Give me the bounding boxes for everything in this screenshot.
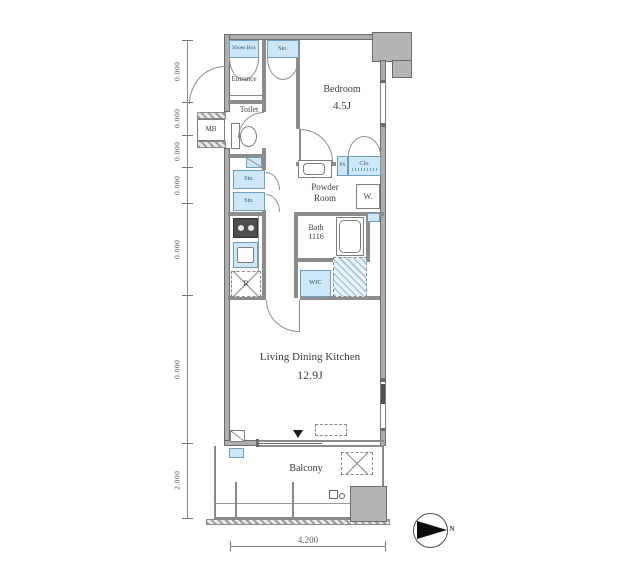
window-bedroom bbox=[380, 80, 386, 126]
balcony-small-box bbox=[229, 448, 244, 458]
balcony-rail-post bbox=[292, 482, 294, 518]
entrance-door-arc bbox=[189, 66, 225, 104]
room-label-mb: MB bbox=[197, 125, 225, 133]
ac-unit-space bbox=[315, 424, 347, 436]
stove-burner bbox=[248, 225, 254, 231]
balcony-edge-left bbox=[214, 446, 216, 519]
shoes-box: Shoes Box bbox=[229, 40, 259, 58]
kitchen-sink-basin bbox=[237, 247, 254, 263]
mb-hatch bbox=[197, 141, 226, 148]
storage-door-arc bbox=[266, 172, 280, 190]
room-label-powder-2: Room bbox=[300, 193, 350, 203]
compass-north-label: N bbox=[447, 525, 457, 533]
toilet-counter bbox=[246, 157, 262, 168]
window-balcony-top bbox=[256, 440, 384, 442]
dimension-label-bottom: 4.200 bbox=[278, 535, 338, 545]
refrigerator-label: R bbox=[231, 279, 261, 288]
dimension-label-left: 2.000 bbox=[170, 462, 184, 498]
structural-column-bottom-right bbox=[350, 486, 387, 522]
floor-plan-canvas: 0.000 0.000 0.000 0.000 0.000 0.000 2.00… bbox=[0, 0, 640, 569]
storage-1: Sto. bbox=[233, 170, 265, 189]
room-label-ldk-size: 12.9J bbox=[280, 368, 340, 383]
toilet-door-arc bbox=[238, 112, 264, 138]
wall-right bbox=[380, 60, 386, 82]
room-label-entrance: Entrance bbox=[222, 75, 266, 83]
wall-interior bbox=[262, 148, 266, 170]
dimension-label-left: 0.000 bbox=[170, 133, 184, 169]
dimension-tick bbox=[230, 541, 231, 551]
dimension-label-left: 0.000 bbox=[170, 53, 184, 89]
entry-direction-marker bbox=[293, 430, 303, 438]
stove bbox=[233, 218, 258, 238]
dimension-tick bbox=[385, 541, 386, 551]
stove-burner bbox=[238, 225, 244, 231]
balcony-faucet-icon bbox=[329, 490, 338, 499]
closet-box: Clo. bbox=[348, 156, 381, 176]
counter-box bbox=[367, 213, 380, 222]
closet-door-arc bbox=[364, 136, 381, 156]
dimension-tick bbox=[182, 443, 193, 444]
wall-right bbox=[380, 430, 386, 446]
room-label-bath-size: 1116 bbox=[298, 232, 334, 241]
washbasin-bowl bbox=[303, 163, 325, 175]
dimension-label-left: 0.000 bbox=[170, 167, 184, 203]
bedroom-door-arc bbox=[300, 129, 333, 162]
room-label-powder-1: Powder bbox=[300, 182, 350, 192]
dimension-label-left: 0.000 bbox=[170, 231, 184, 267]
balcony-rail-post bbox=[235, 482, 237, 518]
dimension-line-left bbox=[187, 40, 188, 518]
wic-shelf-hatch bbox=[333, 257, 367, 297]
dimension-label-left: 0.000 bbox=[170, 100, 184, 136]
dimension-line-bottom bbox=[230, 546, 386, 547]
window-balcony-bottom bbox=[256, 445, 384, 447]
room-label-balcony: Balcony bbox=[276, 463, 336, 474]
room-label-bath: Bath bbox=[298, 223, 334, 232]
wall-interior bbox=[228, 100, 264, 104]
storage-2: Sto. bbox=[233, 192, 265, 211]
wic-box: WIC bbox=[300, 270, 331, 297]
mb-hatch bbox=[197, 112, 226, 119]
window-frame bbox=[380, 378, 386, 382]
evacuation-hatch bbox=[341, 452, 373, 475]
dimension-tick bbox=[182, 40, 193, 41]
room-label-bedroom: Bedroom bbox=[312, 84, 372, 95]
ldk-door-leaf bbox=[299, 300, 301, 332]
entrance-step-line bbox=[228, 95, 262, 96]
bedroom-door-leaf bbox=[299, 129, 301, 162]
wall-interior bbox=[262, 210, 266, 298]
balcony-drain-icon bbox=[339, 493, 345, 499]
dimension-tick bbox=[182, 203, 193, 204]
ldk-door-arc bbox=[266, 300, 299, 332]
room-label-bedroom-size: 4.5J bbox=[322, 100, 362, 112]
room-label-ldk: Living Dining Kitchen bbox=[240, 351, 380, 363]
washer-label: W. bbox=[356, 192, 380, 201]
window-frame bbox=[256, 439, 259, 447]
closet-hanger-pipe bbox=[352, 168, 378, 171]
storage-door-arc bbox=[266, 194, 280, 212]
bathtub-inner bbox=[339, 220, 361, 253]
structural-column-top-right bbox=[392, 60, 412, 78]
ps-box: PS bbox=[337, 156, 348, 176]
window-frame bbox=[380, 80, 386, 83]
north-arrow-icon bbox=[417, 521, 447, 539]
dimension-label-left: 0.000 bbox=[170, 351, 184, 387]
closet-door-arc bbox=[267, 58, 283, 80]
dimension-tick bbox=[182, 518, 193, 519]
structural-column-top-right bbox=[372, 32, 412, 62]
storage-top: Sto. bbox=[267, 40, 299, 58]
closet-door-arc bbox=[348, 136, 364, 156]
window-sash bbox=[381, 384, 385, 404]
dimension-tick bbox=[182, 295, 193, 296]
window-balcony-sash bbox=[258, 443, 322, 444]
pipe-space-box bbox=[230, 430, 245, 442]
